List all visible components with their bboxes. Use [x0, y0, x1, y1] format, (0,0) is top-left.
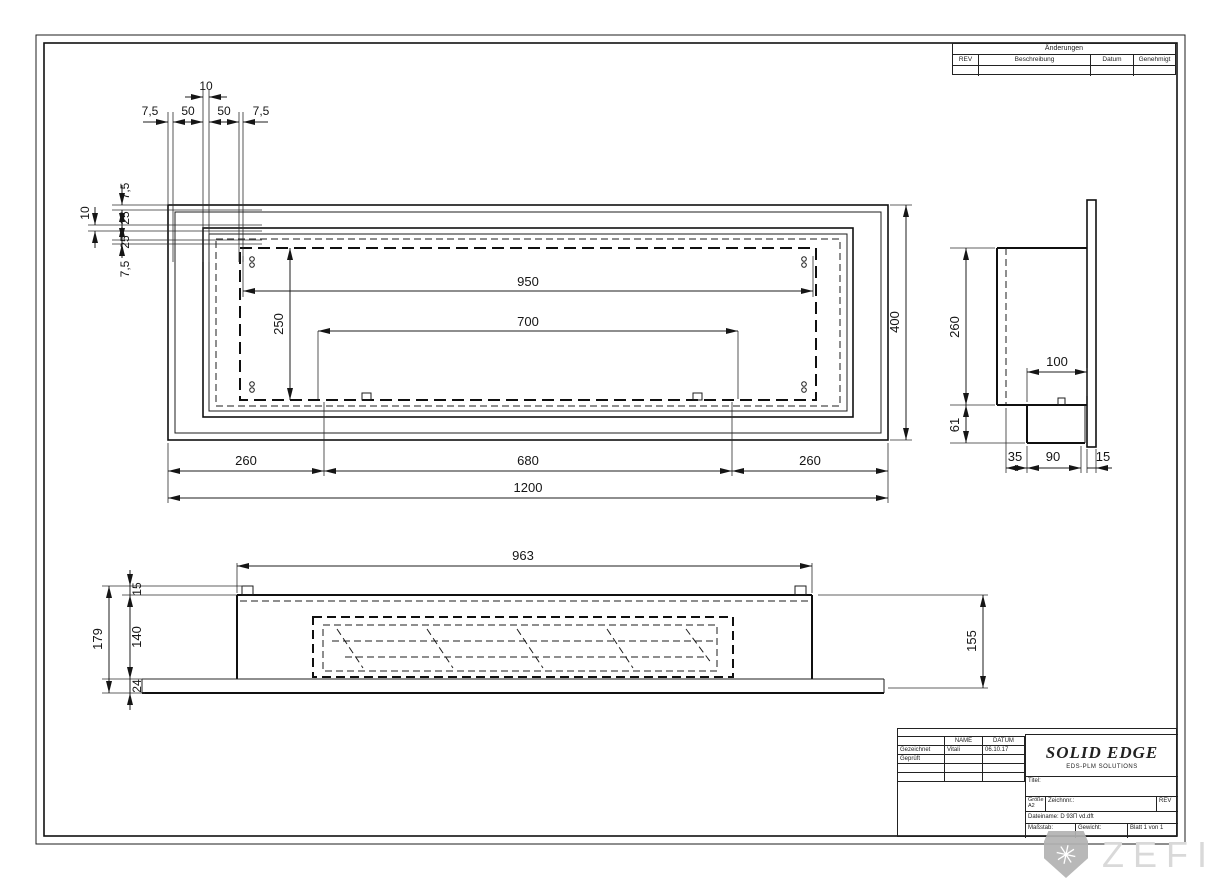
revision-table-title: Änderungen [953, 44, 1175, 55]
title-block-empty-area [898, 781, 1025, 838]
rev-field: REV [1156, 796, 1178, 811]
revision-table: Änderungen REV Beschreibung Datum Genehm… [952, 43, 1176, 75]
dim-side-lower: 61 [947, 418, 962, 432]
brand-subtitle: EDS-PLM SOLUTIONS [1028, 764, 1176, 770]
revision-col-appr: Genehmigt [1134, 55, 1175, 65]
zefire-badge: ✳ [1044, 831, 1088, 878]
title-block: NAME DATUM Gezeichnet Vitali 06.10.17 Ge… [897, 728, 1177, 837]
revision-col-desc: Beschreibung [979, 55, 1091, 65]
dim-bottom-right: 155 [964, 630, 979, 652]
drawing-sheet: 950 700 250 400 260 680 260 1200 10 7,5 … [0, 0, 1216, 879]
dim-left-2: 25 [118, 211, 132, 225]
clip-right [693, 393, 702, 400]
dim-left-3: 25 [118, 235, 132, 249]
dim-top-4: 7,5 [253, 104, 270, 118]
dim-bottom-total: 179 [90, 628, 105, 650]
dim-side-90: 90 [1046, 449, 1060, 464]
solid-edge-logo: SOLID EDGE [1028, 743, 1176, 763]
dim-side-inset: 100 [1046, 354, 1068, 369]
dim-bottom-body: 140 [129, 626, 144, 648]
dim-burner-width: 700 [517, 314, 539, 329]
brand-box: SOLID EDGE EDS-PLM SOLUTIONS [1025, 734, 1178, 776]
dim-opening-height: 250 [271, 313, 286, 335]
size-value: A2 [1028, 804, 1043, 810]
revision-table-header: REV Beschreibung Datum Genehmigt [953, 55, 1175, 66]
dim-height: 400 [887, 311, 902, 333]
dim-margin-right: 260 [799, 453, 821, 468]
size-field: Größe A2 [1025, 796, 1045, 811]
zefire-watermark: ✳ ZEFIRE [1044, 831, 1216, 878]
drawn-date: 06.10.17 [983, 746, 1025, 755]
dim-bottom-lip: 15 [130, 582, 144, 596]
filename-value: Dateiname: D 93П vd.dft [1028, 814, 1094, 820]
dim-bottom-base: 24 [130, 679, 144, 693]
dim-margin-left: 260 [235, 453, 257, 468]
dim-side-depth: 260 [947, 316, 962, 338]
dim-bottom-width: 963 [512, 548, 534, 563]
dim-top-2: 50 [181, 104, 195, 118]
col-datum: DATUM [983, 737, 1025, 746]
dim-gap-left: 10 [78, 206, 92, 220]
zefire-logo-icon: ✳ [1053, 840, 1080, 870]
revision-col-date: Datum [1091, 55, 1134, 65]
zefire-watermark-text: ZEFIRE [1102, 834, 1216, 876]
dim-opening-width: 950 [517, 274, 539, 289]
clip-bottom-left [242, 586, 253, 595]
title-field: Titel: [1025, 776, 1178, 796]
dim-total-width: 1200 [514, 480, 543, 495]
dim-gap-top: 10 [199, 79, 213, 93]
drawn-name: Vitali [945, 746, 983, 755]
dim-top-3: 50 [217, 104, 231, 118]
clip-side [1058, 398, 1065, 405]
dim-side-15: 15 [1096, 449, 1110, 464]
burner-tray-hidden [313, 617, 733, 677]
clip-left [362, 393, 371, 400]
col-name: NAME [945, 737, 983, 746]
checked-label: Geprüft [898, 755, 945, 764]
revision-col-rev: REV [953, 55, 979, 65]
dim-center: 680 [517, 453, 539, 468]
title-block-signatures: NAME DATUM Gezeichnet Vitali 06.10.17 Ge… [898, 736, 1025, 781]
clip-bottom-right [795, 586, 806, 595]
revision-table-empty-row [953, 66, 1175, 76]
dim-left-4: 7,5 [118, 260, 132, 277]
rev-label: REV [1159, 798, 1171, 804]
bottom-view [142, 586, 884, 693]
drawn-label: Gezeichnet [898, 746, 945, 755]
dim-left-1: 7,5 [118, 182, 132, 199]
dim-top-1: 7,5 [142, 104, 159, 118]
side-view [997, 200, 1096, 447]
filename-field: Dateiname: D 93П vd.dft [1025, 811, 1178, 823]
drawing-number-label: Zeichnnr.: [1048, 798, 1074, 804]
bottom-view-dimensions: 963 155 15 140 24 179 [90, 548, 988, 710]
title-label: Titel: [1028, 778, 1041, 784]
dim-side-35: 35 [1008, 449, 1022, 464]
drawing-number-field: Zeichnnr.: [1045, 796, 1156, 811]
